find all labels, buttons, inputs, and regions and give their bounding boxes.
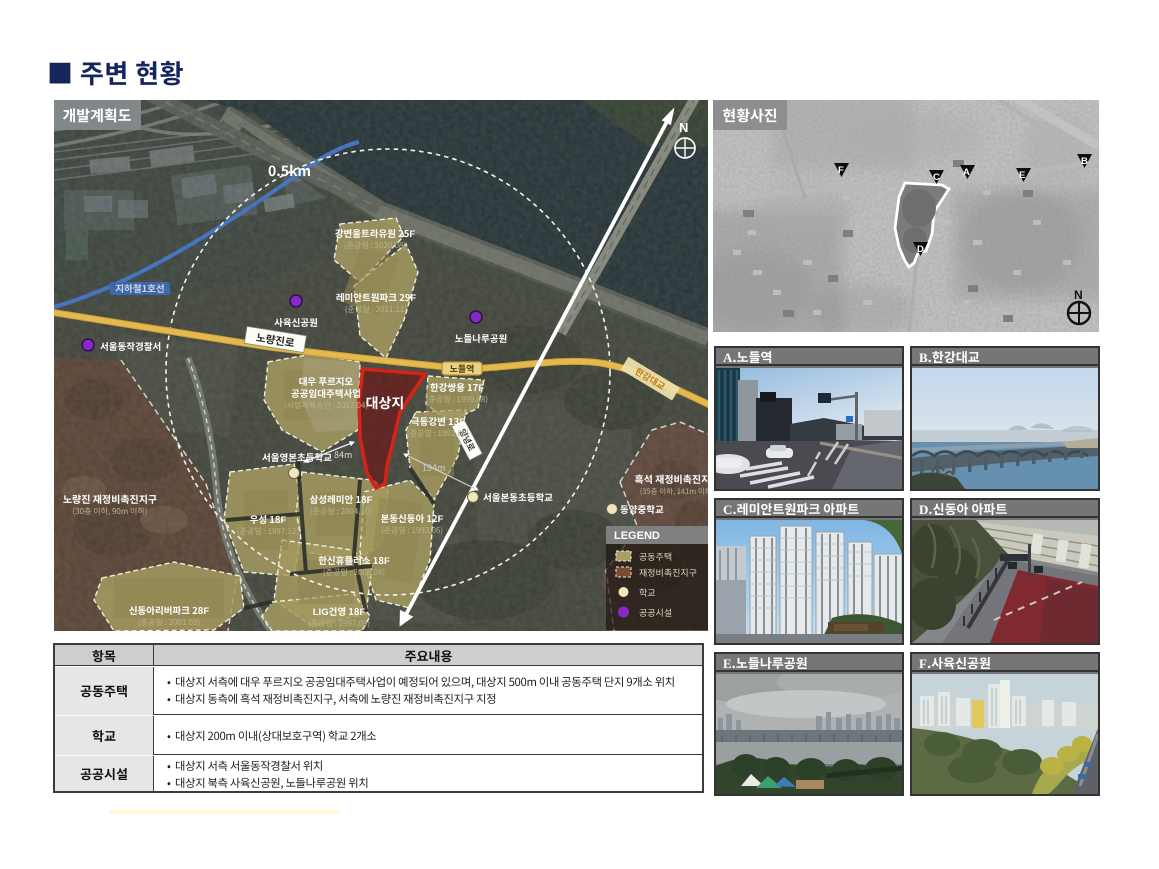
svg-text:B: B xyxy=(1081,153,1088,167)
svg-text:(준공일 : 1992.03): (준공일 : 1992.03) xyxy=(407,428,469,439)
svg-text:강변울트라유원 25F: 강변울트라유원 25F xyxy=(335,226,416,240)
svg-text:194m: 194m xyxy=(422,461,445,474)
svg-text:학교: 학교 xyxy=(639,586,656,599)
svg-text:N: N xyxy=(1074,286,1083,303)
svg-text:(준공일 : 1997.12): (준공일 : 1997.12) xyxy=(237,526,299,537)
svg-text:C: C xyxy=(933,169,940,183)
svg-text:공동주택: 공동주택 xyxy=(639,550,672,563)
svg-text:개발계획도: 개발계획도 xyxy=(62,105,131,126)
svg-text:극동강변 13F: 극동강변 13F xyxy=(411,414,465,428)
svg-text:서울본동초등학교: 서울본동초등학교 xyxy=(483,490,553,504)
svg-text:레미안트원파크 29F: 레미안트원파크 29F xyxy=(336,290,417,304)
svg-text:노량진 재정비촉진지구: 노량진 재정비촉진지구 xyxy=(63,491,157,506)
svg-text:본동신동아 12F: 본동신동아 12F xyxy=(381,511,444,525)
svg-text:84m: 84m xyxy=(334,448,352,461)
svg-text:신동아리버파크 28F: 신동아리버파크 28F xyxy=(129,603,210,617)
svg-text:동양중학교: 동양중학교 xyxy=(620,502,664,516)
svg-text:(준공일 : 1997.09): (준공일 : 1997.09) xyxy=(308,618,370,629)
svg-text:삼성레미안 18F: 삼성레미안 18F xyxy=(310,492,373,506)
svg-text:한강쌍용 17F: 한강쌍용 17F xyxy=(430,380,484,394)
svg-text:(준공일 : 2008.08): (준공일 : 2008.08) xyxy=(323,567,385,578)
svg-text:(35층 이하, 141m 이하): (35층 이하, 141m 이하) xyxy=(640,486,708,497)
svg-text:N: N xyxy=(679,117,688,136)
svg-text:대상지: 대상지 xyxy=(366,393,405,413)
svg-text:(준공일 : 1993.06): (준공일 : 1993.06) xyxy=(381,525,443,536)
svg-text:0.5km: 0.5km xyxy=(268,161,311,181)
svg-text:D: D xyxy=(917,241,924,255)
svg-text:(준공일 : 2011.11): (준공일 : 2011.11) xyxy=(345,304,407,315)
svg-text:A: A xyxy=(963,164,970,178)
svg-text:F: F xyxy=(838,162,844,176)
svg-text:공공시설: 공공시설 xyxy=(639,606,672,619)
svg-text:(준공일 : 2004.10): (준공일 : 2004.10) xyxy=(310,506,372,517)
svg-text:공공임대주택사업: 공공임대주택사업 xyxy=(291,386,361,400)
svg-text:E: E xyxy=(1019,167,1025,181)
svg-text:노들나루공원: 노들나루공원 xyxy=(455,331,507,345)
svg-text:노들역: 노들역 xyxy=(450,362,475,375)
svg-text:현황사진: 현황사진 xyxy=(722,105,777,126)
svg-text:재정비촉진지구: 재정비촉진지구 xyxy=(639,566,697,579)
svg-text:LIG건영 18F: LIG건영 18F xyxy=(313,604,366,618)
svg-text:LEGEND: LEGEND xyxy=(614,530,660,542)
svg-text:(준공일 : 2001.02): (준공일 : 2001.02) xyxy=(138,617,200,628)
svg-text:한신휴플러스 18F: 한신휴플러스 18F xyxy=(318,553,390,567)
svg-text:흑석 재정비촉진지구: 흑석 재정비촉진지구 xyxy=(634,471,708,486)
svg-text:서울동작경찰서: 서울동작경찰서 xyxy=(100,339,161,353)
svg-text:(준공일 : 2020.08): (준공일 : 2020.08) xyxy=(344,240,406,251)
svg-text:(준공일 : 1999.08): (준공일 : 1999.08) xyxy=(426,394,488,405)
svg-text:(사업계획승인 : 2017.04): (사업계획승인 : 2017.04) xyxy=(284,400,368,411)
svg-text:서울영본초등학교: 서울영본초등학교 xyxy=(262,450,332,464)
svg-text:우성 18F: 우성 18F xyxy=(250,512,287,526)
svg-text:(30층 이하, 90m 이하): (30층 이하, 90m 이하) xyxy=(73,506,148,517)
svg-text:사육신공원: 사육신공원 xyxy=(274,315,318,329)
